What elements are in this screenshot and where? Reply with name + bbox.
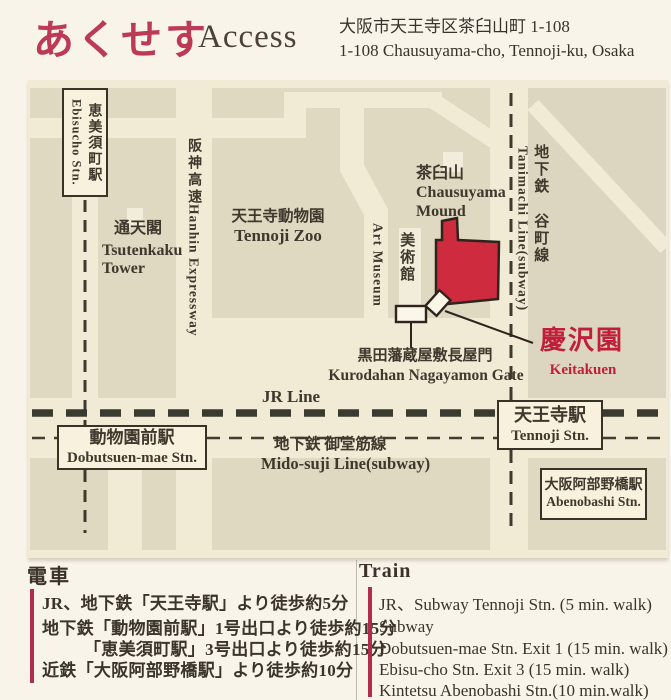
station-box-tennoji: 天王寺駅 Tennoji Stn. [497, 400, 603, 450]
nagayamon-gate-label-en: Kurodahan Nagayamon Gate [314, 367, 538, 385]
train-access-heading-en: Train [359, 560, 411, 583]
art-museum-label-jp: 美術館 [397, 232, 414, 283]
accent-bar-jp [30, 589, 34, 683]
access-line-en-2: Subway [379, 617, 434, 637]
station-box-abenobashi: 大阪阿部野橋駅 Abenobashi Stn. [540, 468, 647, 520]
chausuyama-label-jp: 茶臼山 [416, 164, 506, 183]
dobutsuenmae-station-label-jp: 動物園前駅 [90, 428, 175, 448]
hanshin-expressway-label-en: Hanhin Expressway [186, 204, 202, 337]
tsutenkaku-label-jp: 通天閣 [114, 220, 162, 238]
nagayamon-gate-marker [396, 306, 426, 322]
abenobashi-station-label-jp: 大阪阿部野橋駅 [545, 478, 643, 495]
tsutenkaku-label-en1: Tsutenkaku [102, 242, 182, 260]
nagayamon-gate-label-jp: 黒田藩蔵屋敷長屋門 [325, 348, 525, 365]
ebisucho-station-label-en: Ebisucho Stn. [69, 99, 84, 186]
abenobashi-station-label-en: Abenobashi Stn. [546, 494, 641, 510]
tanimachi-line-label-en: Tanimachi Line(subway) [515, 146, 531, 311]
keitakuen-label-en: Keitakuen [540, 362, 626, 379]
tennoji-station-label-en: Tennoji Stn. [511, 427, 589, 445]
station-box-ebisucho: Ebisucho Stn. 恵美須町駅 [62, 88, 108, 197]
hanshin-expressway-label-jp: 阪神高速 [185, 138, 201, 206]
accent-bar-en [368, 587, 372, 697]
address-japanese: 大阪市天王寺区茶臼山町 1-108 [339, 15, 634, 39]
tennoji-station-label-jp: 天王寺駅 [514, 405, 586, 427]
station-box-dobutsuenmae: 動物園前駅 Dobutsuen-mae Stn. [57, 425, 207, 470]
access-line-jp-1: JR、地下鉄「天王寺駅」より徒歩約5分 [42, 589, 349, 614]
tsutenkaku-label-en2: Tower [102, 260, 145, 278]
ebisucho-station-label-jp: 恵美須町駅 [85, 103, 102, 183]
tennoji-zoo-label-jp: 天王寺動物園 [214, 208, 342, 226]
address-block: 大阪市天王寺区茶臼山町 1-108 1-108 Chausuyama-cho, … [339, 15, 634, 63]
page-title-japanese: あくせす [33, 6, 209, 66]
access-line-en-5: Kintetsu Abenobashi Stn.(10 min.walk) [379, 681, 649, 700]
address-english: 1-108 Chausuyama-cho, Tennoji-ku, Osaka [339, 39, 634, 63]
train-access-heading-jp: 電車 [27, 560, 71, 589]
chausuyama-label-en1: Chausuyama [416, 183, 506, 202]
tennoji-zoo-label-en: Tennoji Zoo [214, 226, 342, 246]
chausuyama-label-en2: Mound [416, 202, 506, 221]
tanimachi-line-label-jp: 地下鉄 谷町線 [531, 144, 548, 264]
access-line-en-4: Ebisu-cho Stn. Exit 3 (15 min. walk) [379, 660, 629, 680]
keitakuen-label-jp: 慶沢園 [540, 326, 624, 356]
access-line-en-3: Dobutsuen-mae Stn. Exit 1 (15 min. walk) [379, 639, 668, 659]
jr-line-label: JR Line [262, 387, 320, 407]
access-map: Ebisucho Stn. 恵美須町駅 動物園前駅 Dobutsuen-mae … [28, 80, 668, 558]
midosuji-line-label-en: Mido-suji Line(subway) [261, 455, 430, 474]
access-line-en-1: JR、Subway Tennoji Stn. (5 min. walk) [379, 590, 652, 615]
access-page: あくせす Access 大阪市天王寺区茶臼山町 1-108 1-108 Chau… [0, 0, 671, 700]
chausuyama-mound-label: 茶臼山 Chausuyama Mound [416, 164, 506, 221]
access-line-jp-4: 近鉄「大阪阿部野橋駅」より徒歩約10分 [42, 656, 353, 681]
dobutsuenmae-station-label-en: Dobutsuen-mae Stn. [67, 449, 197, 467]
tennoji-zoo-label: 天王寺動物園 Tennoji Zoo [214, 208, 342, 245]
page-title-english: Access [198, 19, 297, 56]
art-museum-label-en: Art Museum [370, 223, 386, 307]
midosuji-line-label-jp: 地下鉄 御堂筋線 [274, 436, 386, 454]
